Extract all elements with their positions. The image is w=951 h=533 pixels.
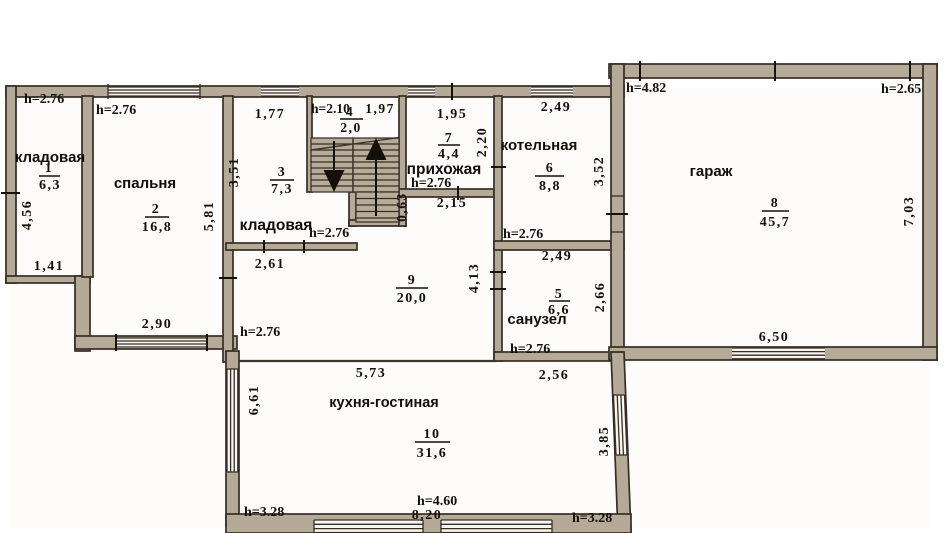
- svg-text:4,13: 4,13: [467, 263, 482, 294]
- svg-text:санузел: санузел: [507, 311, 566, 328]
- svg-text:2,66: 2,66: [593, 282, 608, 313]
- svg-text:1,97: 1,97: [365, 101, 395, 116]
- svg-text:31,6: 31,6: [417, 446, 448, 461]
- svg-text:3,51: 3,51: [227, 157, 242, 188]
- svg-text:3: 3: [278, 165, 287, 180]
- svg-text:8,20: 8,20: [412, 508, 443, 523]
- svg-text:h=2.76: h=2.76: [503, 227, 543, 242]
- svg-text:6,3: 6,3: [39, 178, 61, 193]
- svg-text:5: 5: [555, 287, 564, 302]
- svg-text:h=3.28: h=3.28: [244, 505, 284, 520]
- svg-text:9: 9: [408, 273, 417, 288]
- svg-text:8: 8: [771, 196, 780, 211]
- svg-text:2,20: 2,20: [475, 127, 490, 158]
- svg-text:2,56: 2,56: [539, 368, 570, 383]
- svg-text:h=2.76: h=2.76: [510, 342, 550, 357]
- svg-text:3,85: 3,85: [597, 426, 612, 457]
- svg-text:гараж: гараж: [690, 163, 733, 180]
- svg-text:2,49: 2,49: [542, 249, 573, 264]
- svg-text:6,50: 6,50: [759, 330, 790, 345]
- svg-text:5,81: 5,81: [202, 201, 217, 232]
- svg-text:2,0: 2,0: [340, 120, 361, 135]
- svg-text:2,49: 2,49: [541, 100, 572, 115]
- svg-text:h=2.76: h=2.76: [240, 325, 280, 340]
- svg-text:7,03: 7,03: [902, 196, 917, 227]
- svg-text:16,8: 16,8: [142, 220, 173, 235]
- svg-text:h=4.60: h=4.60: [417, 494, 457, 509]
- svg-text:6: 6: [546, 161, 555, 176]
- svg-text:7,3: 7,3: [271, 182, 293, 197]
- svg-text:6,61: 6,61: [247, 385, 262, 416]
- svg-text:h=3.28: h=3.28: [572, 511, 612, 526]
- svg-text:1: 1: [45, 161, 54, 176]
- svg-text:h=2.76: h=2.76: [24, 92, 64, 107]
- svg-text:спальня: спальня: [114, 175, 176, 192]
- svg-text:h=2.10: h=2.10: [311, 101, 350, 116]
- svg-text:кладовая: кладовая: [240, 217, 313, 234]
- svg-text:4,4: 4,4: [438, 147, 460, 162]
- svg-text:кухня-гостиная: кухня-гостиная: [329, 395, 439, 411]
- svg-text:45,7: 45,7: [760, 215, 791, 230]
- svg-text:4: 4: [346, 104, 354, 119]
- svg-text:4,56: 4,56: [20, 200, 35, 231]
- svg-text:h=2.76: h=2.76: [96, 103, 136, 118]
- svg-text:5,73: 5,73: [356, 366, 387, 381]
- svg-text:1,77: 1,77: [255, 107, 286, 122]
- svg-text:1,41: 1,41: [34, 259, 65, 274]
- svg-text:h=4.82: h=4.82: [626, 81, 666, 96]
- svg-text:0,63: 0,63: [394, 192, 409, 222]
- svg-text:20,0: 20,0: [397, 291, 428, 306]
- svg-text:2,61: 2,61: [255, 257, 286, 272]
- svg-text:h=2.76: h=2.76: [411, 176, 451, 191]
- svg-text:7: 7: [445, 131, 454, 146]
- svg-text:2: 2: [152, 202, 161, 217]
- svg-text:h=2.65: h=2.65: [881, 82, 921, 97]
- svg-text:3,52: 3,52: [592, 156, 607, 187]
- svg-text:1,95: 1,95: [437, 107, 468, 122]
- svg-text:2,15: 2,15: [437, 196, 468, 211]
- svg-text:котельная: котельная: [501, 137, 578, 154]
- svg-text:h=2.76: h=2.76: [309, 226, 349, 241]
- svg-text:10: 10: [424, 427, 441, 442]
- svg-text:8,8: 8,8: [539, 179, 561, 194]
- svg-text:2,90: 2,90: [142, 317, 173, 332]
